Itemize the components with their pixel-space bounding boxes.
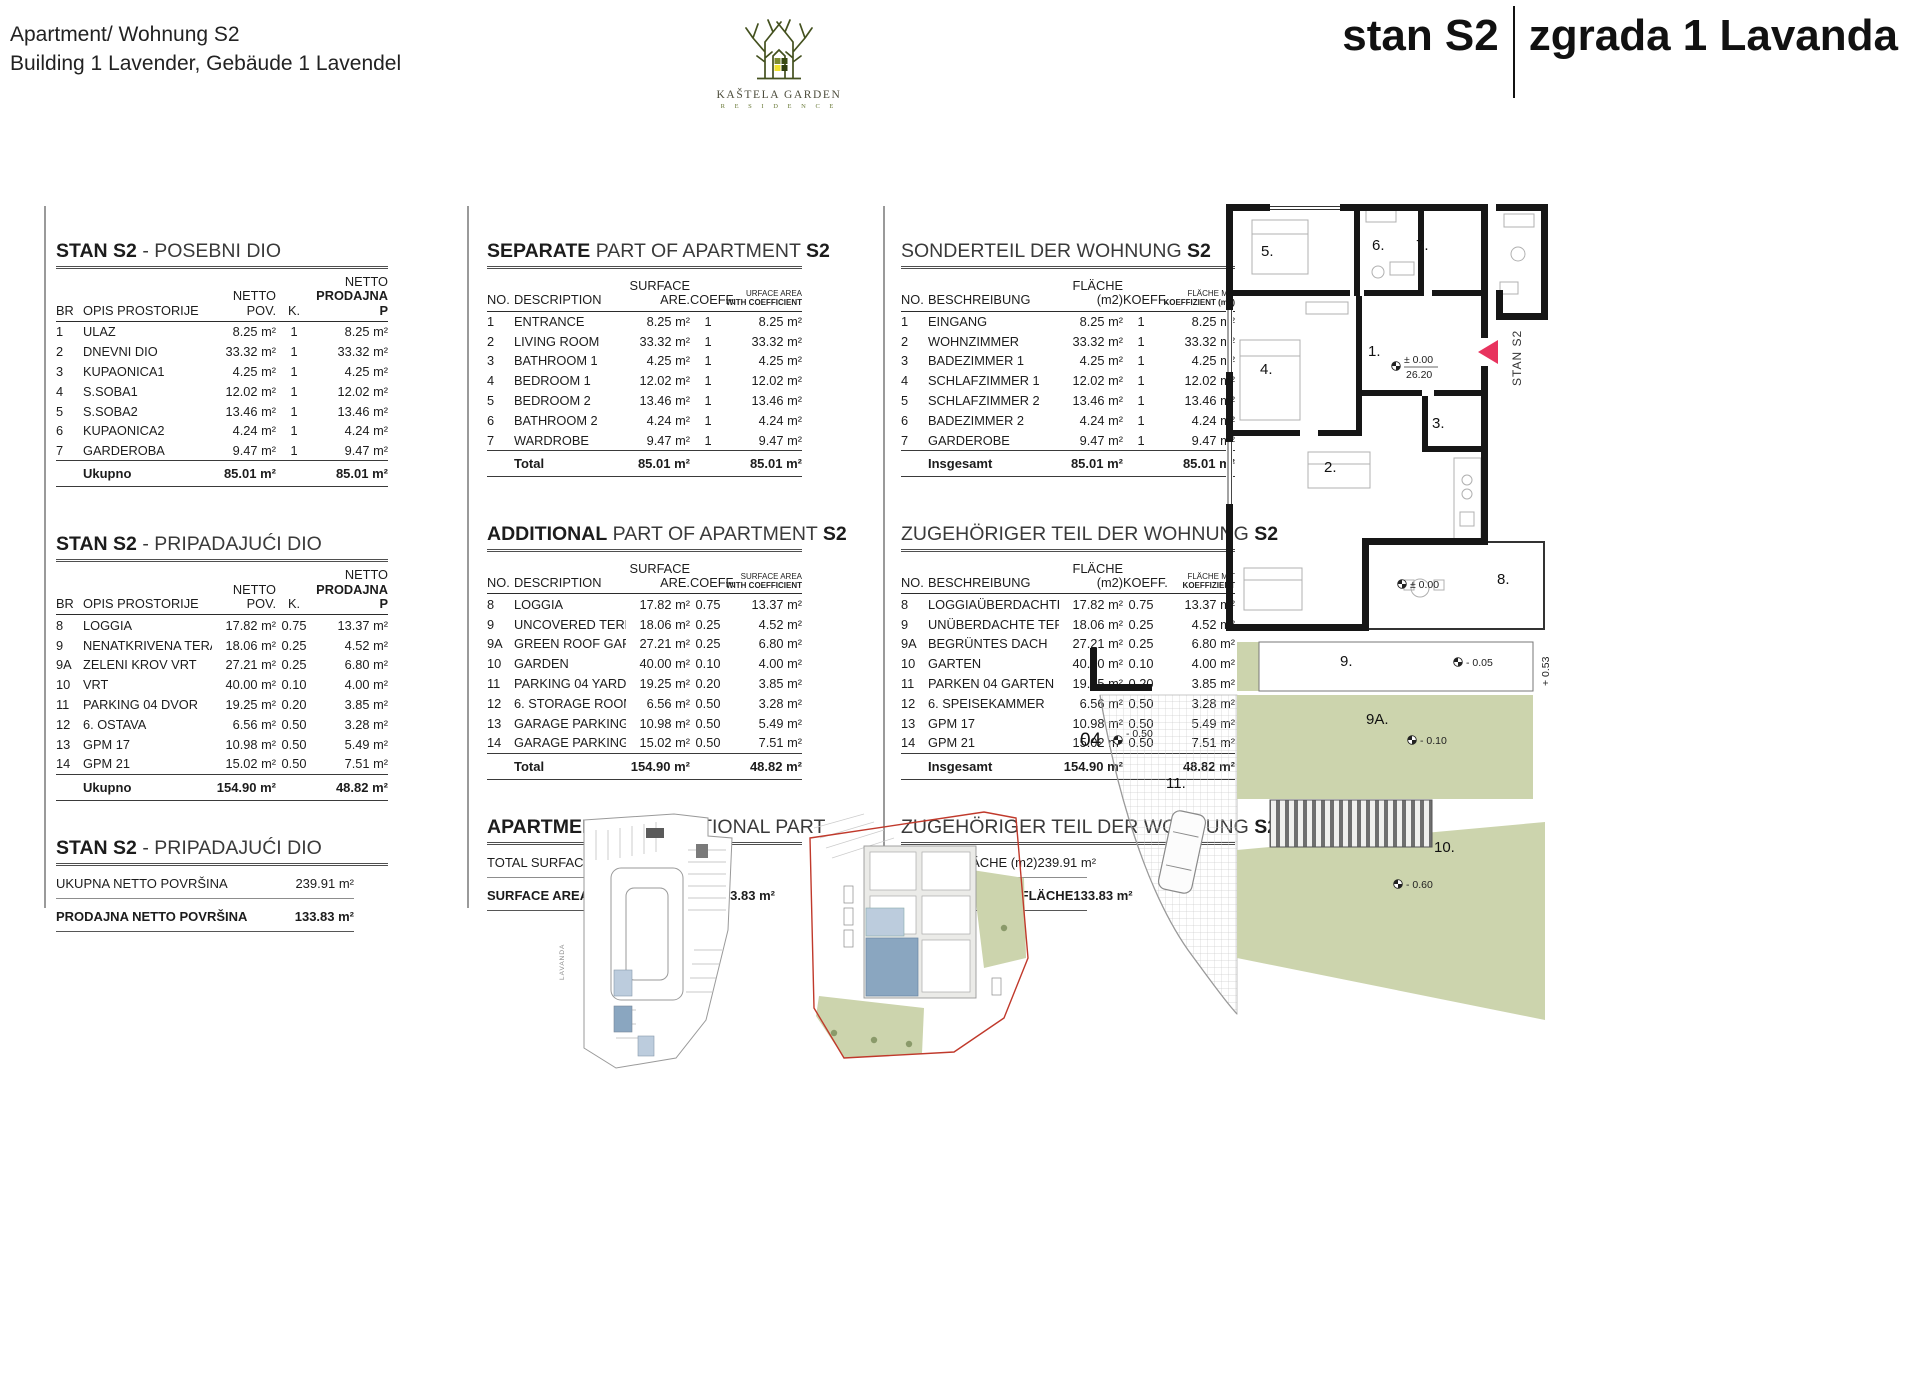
cell-description: GARTEN [928,654,1059,674]
total-area: 85.01 m² [626,450,690,476]
cell-coeff: 1 [276,321,312,341]
total-row: Total 154.90 m² 48.82 m² [487,753,802,779]
cell-description: SCHLAFZIMMER 2 [928,391,1059,411]
cell-description: BEGRÜNTES DACH [928,634,1059,654]
cell-coeff: 0.25 [276,635,312,655]
table-row: 1 ENTRANCE 8.25 m² 1 8.25 m² [487,311,802,331]
cell-description: WARDROBE [514,430,626,450]
loggia [1366,542,1544,630]
total-area: 85.01 m² [212,461,276,487]
cell-coeff: 0.50 [276,714,312,734]
cell-description: GARAGE PARKING SPACE 17 [514,713,626,733]
room-label: 4. [1260,361,1273,378]
summary-title: STAN S2 - PRIPADAJUĆI DIO [56,837,388,866]
cell-area: 9.47 m² [212,441,276,461]
cell-coeff: 0.25 [690,634,726,654]
cell-coeff: 1 [690,331,726,351]
level-value: ± 0.00 [1410,579,1439,591]
table-row: 3 BATHROOM 1 4.25 m² 1 4.25 m² [487,351,802,371]
col-header-no: NO. [487,558,514,594]
cell-description: LOGGIAÜBERDACHTE [928,594,1059,614]
document-title: Apartment/ Wohnung S2 Building 1 Lavende… [10,20,401,78]
cell-net-area: 3.28 m² [726,693,802,713]
document-title-line2: Building 1 Lavender, Gebäude 1 Lavendel [10,49,401,78]
col-header-net: NETTOPRODAJNA P [312,568,388,614]
cell-area: 33.32 m² [626,331,690,351]
cell-area: 10.98 m² [212,734,276,754]
cell-no: 12 [56,714,83,734]
cell-no: 12 [487,693,514,713]
cell-no: 4 [56,381,83,401]
total-net: 48.82 m² [726,753,802,779]
col-header-area: SURFACEARE. [626,275,690,311]
cell-description: BADEZIMMER 1 [928,351,1059,371]
additional-part-table-en: NO. DESCRIPTION SURFACEARE. COEFF. SURFA… [487,558,802,780]
total-label: Total [514,450,626,476]
table-row: 10 VRT 40.00 m² 0.10 4.00 m² [56,675,388,695]
cell-description: EINGANG [928,311,1059,331]
cell-no: 13 [487,713,514,733]
cell-no: 7 [487,430,514,450]
cell-net-area: 9.47 m² [726,430,802,450]
cell-no: 9A [56,655,83,675]
cell-coeff: 0.10 [276,675,312,695]
cell-no: 11 [487,674,514,694]
table-row: 6 KUPAONICA2 4.24 m² 1 4.24 m² [56,421,388,441]
cell-no: 14 [487,733,514,753]
room-label: 7. [1416,237,1429,254]
total-label: Insgesamt [928,753,1059,779]
cell-description: 6. OSTAVA [83,714,212,734]
cell-net-area: 13.46 m² [726,391,802,411]
cell-no: 10 [487,654,514,674]
cell-coeff: 1 [690,430,726,450]
cell-net-area: 3.28 m² [312,714,388,734]
cell-net-area: 4.00 m² [312,675,388,695]
room-label: 1. [1368,343,1381,360]
cell-area: 12.02 m² [626,371,690,391]
cell-description: SCHLAFZIMMER 1 [928,371,1059,391]
cell-description: UNCOVERED TERRACE [514,614,626,634]
col-header-desc: BESCHREIBUNG [928,275,1059,311]
cell-coeff: 0.50 [276,734,312,754]
cell-no: 5 [487,391,514,411]
cell-no: 6 [901,410,928,430]
cell-description: BEDROOM 2 [514,391,626,411]
col-header-desc: DESCRIPTION [514,275,626,311]
section-title: ADDITIONAL PART OF APARTMENT S2 [487,523,802,552]
table-row: 14 GPM 21 15.02 m² 0.50 7.51 m² [56,754,388,774]
cell-area: 15.02 m² [212,754,276,774]
col-header-net: URFACE AREAWITH COEFFICIENT [726,275,802,311]
cell-net-area: 4.24 m² [312,421,388,441]
unit-title: stan S2 [1342,14,1499,58]
cell-net-area: 12.02 m² [312,381,388,401]
cell-coeff: 0.50 [276,754,312,774]
building-title: zgrada 1 Lavanda [1529,14,1898,58]
cell-no: 9A [487,634,514,654]
cell-net-area: 7.51 m² [726,733,802,753]
plan-sheet: Apartment/ Wohnung S2 Building 1 Lavende… [0,0,1920,1394]
cell-coeff: 1 [690,351,726,371]
room-label: 6. [1372,237,1385,254]
section-title: SEPARATE PART OF APARTMENT S2 [487,240,802,269]
room-label: 9. [1340,653,1353,670]
col-header-area: NETTOPOV. [212,568,276,614]
table-row: 9A ZELENI KROV VRT 27.21 m² 0.25 6.80 m² [56,655,388,675]
cell-no: 10 [56,675,83,695]
total-label: Total [514,753,626,779]
cell-no: 9 [487,614,514,634]
cell-area: 4.25 m² [212,362,276,382]
cell-description: WOHNZIMMER [928,331,1059,351]
col-header-desc: DESCRIPTION [514,558,626,594]
level-value: + 0.53 [1540,656,1552,686]
total-net: 48.82 m² [312,774,388,800]
table-row: 8 LOGGIA 17.82 m² 0.75 13.37 m² [487,594,802,614]
col-header-coeff: COEFF. [690,275,726,311]
cell-coeff: 0.50 [690,713,726,733]
cell-net-area: 4.25 m² [312,362,388,382]
unit-entrance-flag-icon [1478,340,1498,364]
room-label: 10. [1434,839,1455,856]
cell-net-area: 13.37 m² [312,615,388,635]
cell-no: 6 [487,410,514,430]
col-header-no: BR [56,568,83,614]
table-row: 13 GPM 17 10.98 m² 0.50 5.49 m² [56,734,388,754]
column-divider [883,206,885,908]
cell-no: 13 [901,713,928,733]
cell-net-area: 8.25 m² [726,311,802,331]
table-row: 5 S.SOBA2 13.46 m² 1 13.46 m² [56,401,388,421]
cell-no: 4 [901,371,928,391]
cell-no: 7 [56,441,83,461]
cell-coeff: 1 [276,441,312,461]
total-net: 85.01 m² [726,450,802,476]
cell-no: 5 [901,391,928,411]
total-row: Total 85.01 m² 85.01 m² [487,450,802,476]
cell-description: NENATKRIVENA TERASA [83,635,212,655]
col-header-desc: BESCHREIBUNG [928,558,1059,594]
cell-net-area: 4.52 m² [312,635,388,655]
cell-description: S.SOBA2 [83,401,212,421]
cell-area: 4.24 m² [626,410,690,430]
cell-no: 6 [56,421,83,441]
total-label: Ukupno [83,461,212,487]
col-header-coeff: K. [276,275,312,321]
cell-description: LOGGIA [83,615,212,635]
cell-description: GARDEROBE [928,430,1059,450]
cell-no: 4 [487,371,514,391]
cell-net-area: 13.46 m² [312,401,388,421]
col-header-desc: OPIS PROSTORIJE [83,275,212,321]
table-row: 12 6. OSTAVA 6.56 m² 0.50 3.28 m² [56,714,388,734]
summary-row-net: PRODAJNA NETTO POVRŠINA133.83 m² [56,899,354,932]
cell-no: 11 [56,695,83,715]
level-value: - 0.60 [1406,879,1433,891]
sheet-title: stan S2 zgrada 1 Lavanda [1342,14,1898,98]
cell-no: 10 [901,654,928,674]
cell-no: 5 [56,401,83,421]
parking-number: 04 [1080,730,1102,751]
additional-part-table-hr: BR OPIS PROSTORIJE NETTOPOV. K. NETTOPRO… [56,568,388,800]
cell-area: 40.00 m² [626,654,690,674]
cell-coeff: 0.10 [690,654,726,674]
room-label: 3. [1432,415,1445,432]
col-header-desc: OPIS PROSTORIJE [83,568,212,614]
cell-area: 9.47 m² [626,430,690,450]
brand-logo: KAŠTELA GARDEN R E S I D E N C E [714,8,844,110]
cell-no: 9 [56,635,83,655]
document-title-line1: Apartment/ Wohnung S2 [10,20,401,49]
cell-net-area: 6.80 m² [312,655,388,675]
unit-side-label: STAN S2 [1510,330,1524,386]
cell-description: BEDROOM 1 [514,371,626,391]
cell-net-area: 4.52 m² [726,614,802,634]
col-header-no: NO. [487,275,514,311]
total-row: Ukupno 154.90 m² 48.82 m² [56,774,388,800]
cell-coeff: 1 [690,311,726,331]
cell-no: 2 [487,331,514,351]
cell-description: ENTRANCE [514,311,626,331]
cell-area: 19.25 m² [626,674,690,694]
table-row: 6 BATHROOM 2 4.24 m² 1 4.24 m² [487,410,802,430]
cell-description: 6. STORAGE ROOM [514,693,626,713]
cell-description: GPM 17 [83,734,212,754]
total-label: Insgesamt [928,450,1059,476]
cell-area: 18.06 m² [212,635,276,655]
cell-description: GPM 21 [928,733,1059,753]
cell-description: BATHROOM 1 [514,351,626,371]
cell-coeff: 0.20 [690,674,726,694]
table-row: 11 PARKING 04 YARD 19.25 m² 0.20 3.85 m² [487,674,802,694]
cell-description: ZELENI KROV VRT [83,655,212,675]
col-header-coeff: K. [276,568,312,614]
cell-coeff: 1 [690,410,726,430]
table-row: 2 LIVING ROOM 33.32 m² 1 33.32 m² [487,331,802,351]
room-label: 5. [1261,243,1274,260]
table-row: 2 DNEVNI DIO 33.32 m² 1 33.32 m² [56,342,388,362]
cell-net-area: 4.00 m² [726,654,802,674]
cell-description: GARAGE PARKING SPACE 21 [514,733,626,753]
cell-net-area: 12.02 m² [726,371,802,391]
cell-coeff: 1 [276,381,312,401]
col-header-area: NETTOPOV. [212,275,276,321]
cell-area: 40.00 m² [212,675,276,695]
cell-description: KUPAONICA2 [83,421,212,441]
cell-net-area: 8.25 m² [312,321,388,341]
cell-no: 2 [56,342,83,362]
cell-net-area: 7.51 m² [312,754,388,774]
table-row: 14 GARAGE PARKING SPACE 21 15.02 m² 0.50… [487,733,802,753]
table-row: 4 BEDROOM 1 12.02 m² 1 12.02 m² [487,371,802,391]
cell-area: 13.46 m² [626,391,690,411]
cell-net-area: 6.80 m² [726,634,802,654]
cell-coeff: 1 [690,391,726,411]
apartment-floor-plan: STAN S2 1. 2. 3. 4. 5. 6. 7. 8. 9. 9A. 1… [1060,190,1560,1105]
section-title: STAN S2 - PRIPADAJUĆI DIO [56,533,388,562]
column-croatian: STAN S2 - POSEBNI DIO BR OPIS PROSTORIJE… [56,240,388,932]
total-area: 154.90 m² [212,774,276,800]
cell-coeff: 0.75 [276,615,312,635]
col-header-no: NO. [901,275,928,311]
cell-coeff: 1 [276,401,312,421]
site-plan-thumbnail [804,808,1032,1069]
cell-description: GPM 21 [83,754,212,774]
cell-area: 4.24 m² [212,421,276,441]
cell-net-area: 3.85 m² [312,695,388,715]
windows [1226,204,1340,504]
cell-coeff: 1 [276,362,312,382]
cell-description: PARKING 04 DVOR [83,695,212,715]
garage-plan-thumbnail: LAVANDA [556,810,761,1083]
cell-net-area: 33.32 m² [312,342,388,362]
col-header-area: SURFACEARE. [626,558,690,594]
cell-net-area: 5.49 m² [312,734,388,754]
cell-description: GREEN ROOF GARDEN [514,634,626,654]
cell-description: S.SOBA1 [83,381,212,401]
separate-part-table-hr: BR OPIS PROSTORIJE NETTOPOV. K. NETTOPRO… [56,275,388,487]
cell-no: 3 [56,362,83,382]
room-label: 8. [1497,571,1510,588]
cell-description: UNÜBERDACHTE TERRASSE [928,614,1059,634]
summary-row-total: UKUPNA NETTO POVRŠINA239.91 m² [56,866,354,899]
table-row: 4 S.SOBA1 12.02 m² 1 12.02 m² [56,381,388,401]
table-row: 9A GREEN ROOF GARDEN 27.21 m² 0.25 6.80 … [487,634,802,654]
total-label: Ukupno [83,774,212,800]
total-row: Ukupno 85.01 m² 85.01 m² [56,461,388,487]
cell-description: BADEZIMMER 2 [928,410,1059,430]
cell-net-area: 4.25 m² [726,351,802,371]
cell-coeff: 1 [276,421,312,441]
table-row: 3 KUPAONICA1 4.25 m² 1 4.25 m² [56,362,388,382]
brand-subtitle: R E S I D E N C E [714,103,844,110]
table-row: 7 WARDROBE 9.47 m² 1 9.47 m² [487,430,802,450]
table-row: 1 ULAZ 8.25 m² 1 8.25 m² [56,321,388,341]
title-divider [1513,6,1515,98]
level-value: - 0.10 [1420,735,1447,747]
cell-coeff: 0.50 [690,693,726,713]
trees-house-logo-icon [737,8,821,82]
col-header-no: NO. [901,558,928,594]
cell-description: GPM 17 [928,713,1059,733]
cell-no: 3 [901,351,928,371]
brand-name: KAŠTELA GARDEN [714,89,844,101]
col-header-net: SURFACE AREAWITH COEFFICIENT [726,558,802,594]
cell-area: 15.02 m² [626,733,690,753]
table-row: 8 LOGGIA 17.82 m² 0.75 13.37 m² [56,615,388,635]
cell-description: GARDEN [514,654,626,674]
cell-no: 8 [487,594,514,614]
cell-area: 6.56 m² [212,714,276,734]
cell-no: 14 [901,733,928,753]
section-title: STAN S2 - POSEBNI DIO [56,240,388,269]
table-row: 9 NENATKRIVENA TERASA 18.06 m² 0.25 4.52… [56,635,388,655]
col-header-coeff: COEFF. [690,558,726,594]
separate-part-table-en: NO. DESCRIPTION SURFACEARE. COEFF. URFAC… [487,275,802,477]
cell-description: KUPAONICA1 [83,362,212,382]
cell-net-area: 3.85 m² [726,674,802,694]
cell-no: 9A [901,634,928,654]
cell-description: 6. SPEISEKAMMER [928,693,1059,713]
room-label: 11. [1166,775,1186,792]
table-row: 11 PARKING 04 DVOR 19.25 m² 0.20 3.85 m² [56,695,388,715]
cell-description: LIVING ROOM [514,331,626,351]
cell-area: 10.98 m² [626,713,690,733]
cell-area: 27.21 m² [626,634,690,654]
cell-area: 33.32 m² [212,342,276,362]
cell-no: 13 [56,734,83,754]
cell-no: 12 [901,693,928,713]
cell-coeff: 0.25 [690,614,726,634]
table-row: 7 GARDEROBA 9.47 m² 1 9.47 m² [56,441,388,461]
cell-no: 3 [487,351,514,371]
cell-no: 2 [901,331,928,351]
cell-description: PARKEN 04 GARTEN [928,674,1059,694]
level-value: - 0.05 [1466,657,1493,669]
table-row: 10 GARDEN 40.00 m² 0.10 4.00 m² [487,654,802,674]
cell-area: 6.56 m² [626,693,690,713]
cell-description: BATHROOM 2 [514,410,626,430]
garage-plan-label: LAVANDA [559,944,566,980]
table-row: 9 UNCOVERED TERRACE 18.06 m² 0.25 4.52 m… [487,614,802,634]
cell-no: 7 [901,430,928,450]
cell-description: LOGGIA [514,594,626,614]
cell-coeff: 1 [690,371,726,391]
cell-area: 13.46 m² [212,401,276,421]
room-label: 2. [1324,459,1337,476]
cell-area: 17.82 m² [626,594,690,614]
cell-net-area: 13.37 m² [726,594,802,614]
table-row: 12 6. STORAGE ROOM 6.56 m² 0.50 3.28 m² [487,693,802,713]
col-header-no: BR [56,275,83,321]
cell-area: 8.25 m² [212,321,276,341]
cell-description: ULAZ [83,321,212,341]
cell-no: 1 [56,321,83,341]
cell-description: PARKING 04 YARD [514,674,626,694]
cell-area: 27.21 m² [212,655,276,675]
cell-coeff: 0.25 [276,655,312,675]
cell-area: 19.25 m² [212,695,276,715]
cell-description: GARDEROBA [83,441,212,461]
cell-coeff: 1 [276,342,312,362]
cell-coeff: 0.75 [690,594,726,614]
room-label: 9A. [1366,711,1389,728]
cell-no: 9 [901,614,928,634]
cell-area: 17.82 m² [212,615,276,635]
table-row: 5 BEDROOM 2 13.46 m² 1 13.46 m² [487,391,802,411]
cell-description: VRT [83,675,212,695]
cell-net-area: 9.47 m² [312,441,388,461]
cell-area: 18.06 m² [626,614,690,634]
level-dimension: 26.20 [1406,369,1432,381]
pergola-stairs [1270,800,1432,847]
cell-no: 1 [901,311,928,331]
cell-area: 12.02 m² [212,381,276,401]
level-value: - 0.50 [1126,728,1153,740]
cell-no: 14 [56,754,83,774]
column-divider [467,206,469,908]
cell-coeff: 0.50 [690,733,726,753]
total-net: 85.01 m² [312,461,388,487]
cell-no: 11 [901,674,928,694]
table-row: 13 GARAGE PARKING SPACE 17 10.98 m² 0.50… [487,713,802,733]
col-header-net: NETTOPRODAJNA P [312,275,388,321]
total-area: 154.90 m² [626,753,690,779]
cell-no: 1 [487,311,514,331]
cell-area: 8.25 m² [626,311,690,331]
column-divider [44,206,46,908]
